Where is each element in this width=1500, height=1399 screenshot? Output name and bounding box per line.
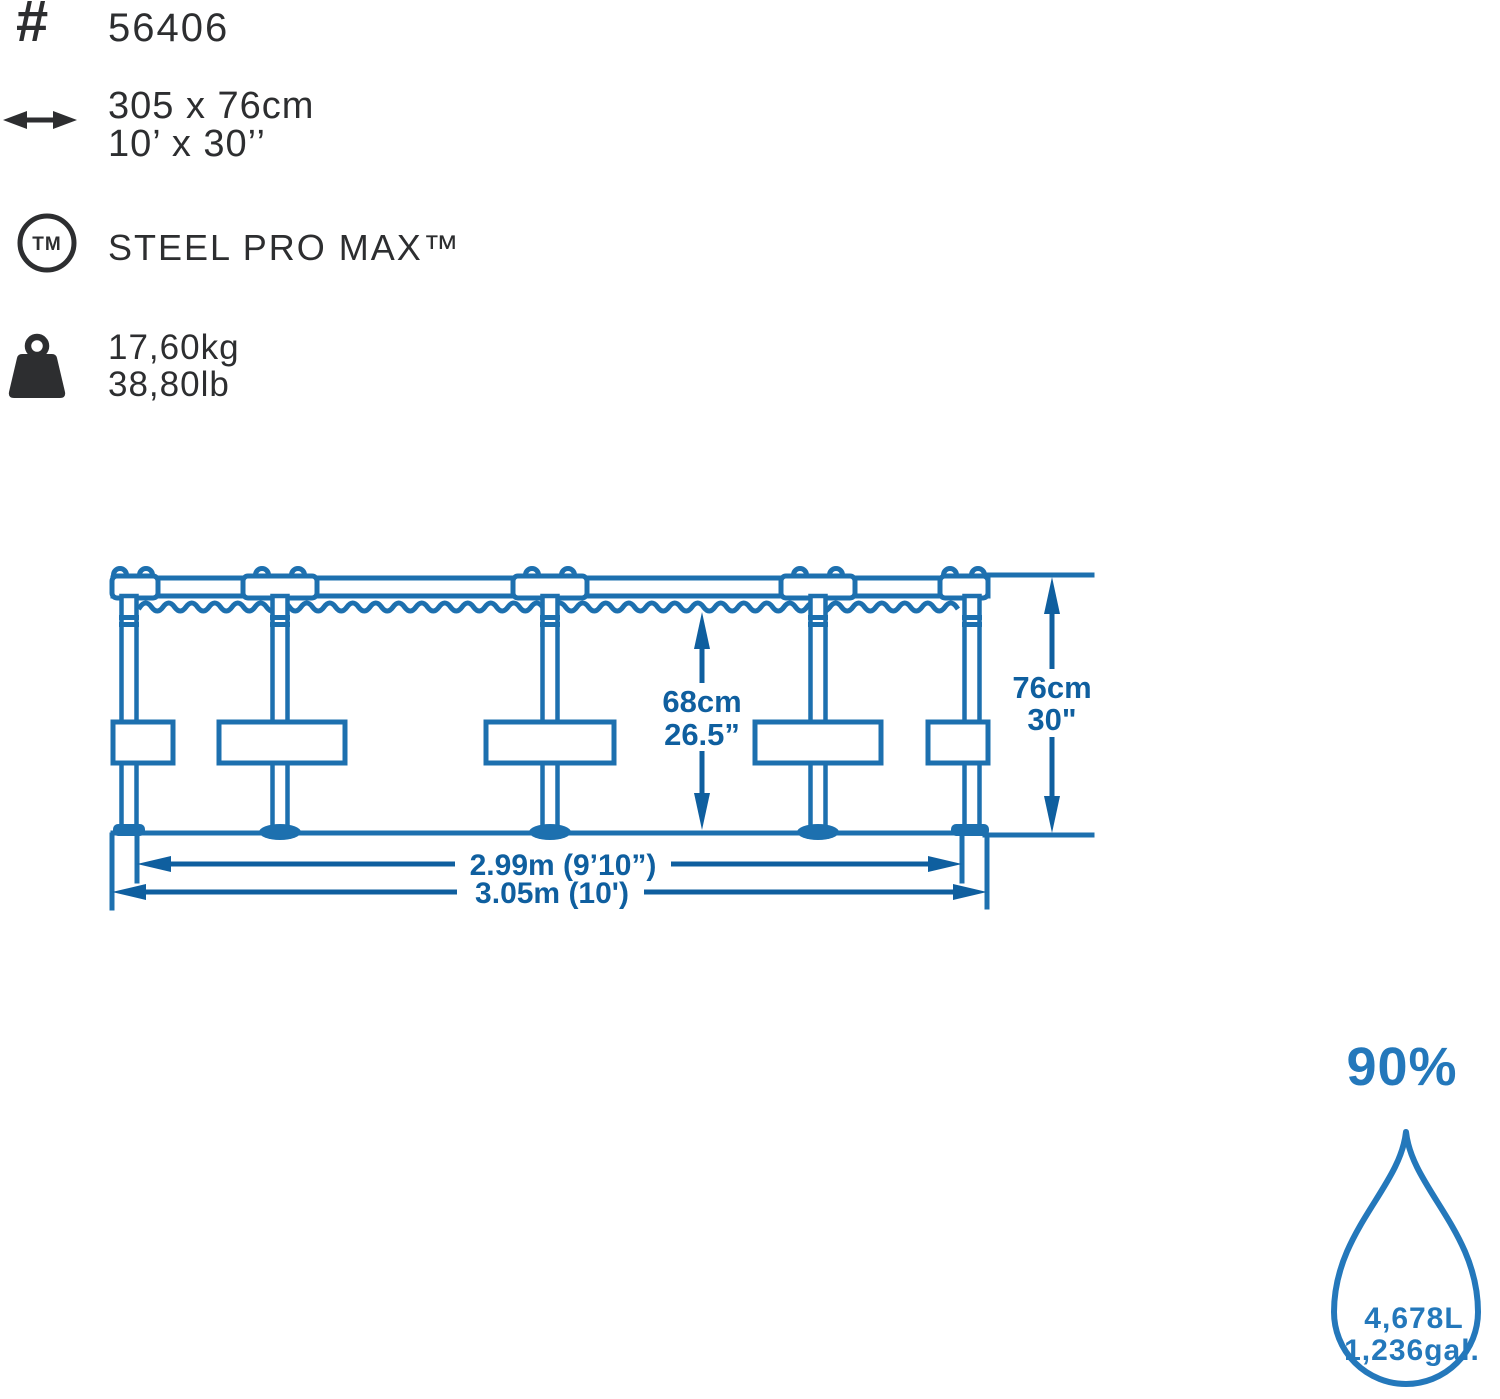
water-depth-metric-label: 68cm	[662, 684, 741, 719]
pool-side-view-diagram: 68cm 26.5” 76cm 30" 2.99m (9’10”) 3.05m …	[80, 550, 1100, 920]
trademark-icon: TM	[16, 212, 78, 274]
size-metric: 305 x 76cm	[108, 87, 314, 125]
size-imperial: 10’ x 30’’	[108, 125, 314, 163]
outer-diameter-label: 3.05m (10')	[475, 877, 629, 910]
size-spec: 305 x 76cm 10’ x 30’’	[108, 87, 314, 163]
svg-text:TM: TM	[32, 234, 61, 255]
weight-imperial: 38,80lb	[108, 366, 240, 403]
water-drop-icon: 4,678L 1,236gal.	[1322, 1126, 1482, 1394]
dim-water-depth: 68cm 26.5”	[662, 612, 741, 830]
weight-icon	[6, 332, 76, 400]
width-arrow-icon	[2, 106, 78, 134]
volume-gallons-label: 1,236gal.	[1344, 1334, 1480, 1367]
item-number-value: 56406	[108, 6, 229, 51]
wall-height-imperial-label: 30"	[1027, 702, 1076, 737]
wall-height-metric-label: 76cm	[1012, 670, 1091, 705]
pool-legs	[122, 596, 980, 833]
water-depth-imperial-label: 26.5”	[664, 717, 740, 752]
dim-wall-height: 76cm 30"	[1012, 577, 1091, 833]
side-support-bands	[113, 722, 988, 763]
weight-spec: 17,60kg 38,80lb	[108, 329, 240, 403]
volume-liters-label: 4,678L	[1364, 1302, 1463, 1335]
product-spec-sheet: # 56406 305 x 76cm 10’ x 30’’ TM STEEL P…	[0, 0, 1500, 1399]
fill-percentage-label: 90%	[1322, 1036, 1482, 1098]
dim-outer-diameter: 3.05m (10')	[112, 877, 987, 910]
weight-metric: 17,60kg	[108, 329, 240, 366]
hash-icon: #	[16, 0, 48, 55]
series-name: STEEL PRO MAX™	[108, 227, 461, 269]
